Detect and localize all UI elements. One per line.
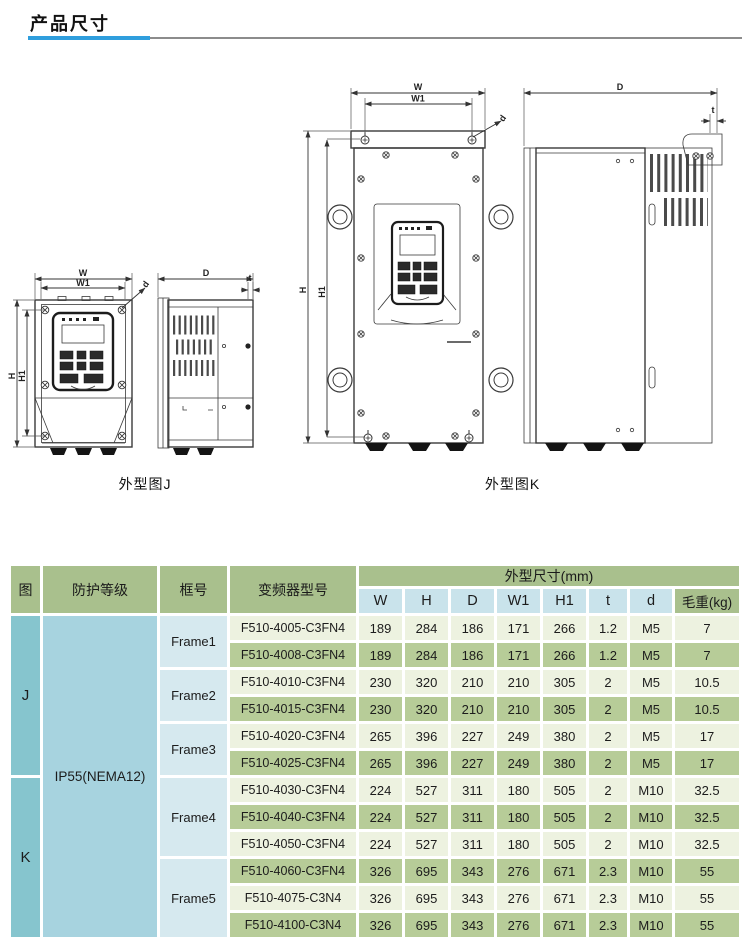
cell-dia: M10 [630,778,672,802]
cell-w1: 210 [497,697,540,721]
col-header-h: H [405,589,448,613]
cell-dia: M10 [630,805,672,829]
col-header-protection: 防护等级 [43,566,157,613]
cell-dia: M5 [630,643,672,667]
cell-weight: 55 [675,859,739,883]
cell-t: 2 [589,778,627,802]
dimension-spec-table: 图 防护等级 框号 变频器型号 外型尺寸(mm) W H D W1 H1 t d… [8,563,742,940]
dim-label-d-hole-k: d [497,113,508,123]
col-header-fig: 图 [11,566,40,613]
figure-j-side-view [158,298,253,455]
cell-w1: 249 [497,724,540,748]
cell-t: 1.2 [589,616,627,640]
model-cell: F510-4030-C3FN4 [230,778,356,802]
model-cell: F510-4008-C3FN4 [230,643,356,667]
fig-group-j: J [11,616,40,775]
cell-weight: 10.5 [675,670,739,694]
col-header-w1: W1 [497,589,540,613]
cell-d: 343 [451,913,494,937]
page-title: 产品尺寸 [30,10,110,36]
cell-w: 224 [359,778,402,802]
dim-label-t-k: t [712,105,715,115]
cell-h1: 671 [543,886,586,910]
cell-d: 227 [451,751,494,775]
cell-weight: 55 [675,886,739,910]
frame-cell: Frame2 [160,670,227,721]
col-header-model: 变频器型号 [230,566,356,613]
cell-weight: 7 [675,616,739,640]
cell-h: 320 [405,670,448,694]
dim-label-d-hole-j: d [140,279,151,289]
cell-h: 320 [405,697,448,721]
cell-d: 186 [451,643,494,667]
col-header-dims-group: 外型尺寸(mm) [359,566,739,586]
col-header-t: t [589,589,627,613]
dim-label-depth-j: D [203,268,210,278]
figure-k-keypad-panel [374,204,460,324]
cell-w: 265 [359,724,402,748]
cell-h1: 305 [543,670,586,694]
cell-d: 210 [451,670,494,694]
table-row: J IP55(NEMA12) Frame1 F510-4005-C3FN4 18… [11,616,739,640]
cell-h: 695 [405,886,448,910]
frame-cell: Frame5 [160,859,227,937]
cell-h1: 305 [543,697,586,721]
col-header-d: D [451,589,494,613]
model-cell: F510-4025-C3FN4 [230,751,356,775]
model-cell: F510-4010-C3FN4 [230,670,356,694]
dim-label-t-j: t [249,273,252,283]
cell-t: 2 [589,751,627,775]
cell-t: 2 [589,832,627,856]
cell-h: 527 [405,832,448,856]
figure-j-keypad [53,313,113,390]
dim-label-w1-j: W1 [76,278,90,288]
cell-w: 189 [359,643,402,667]
model-cell: F510-4060-C3FN4 [230,859,356,883]
cell-h: 527 [405,805,448,829]
figure-k-drawing: W W1 d H H1 D t [290,80,745,465]
frame-cell: Frame3 [160,724,227,775]
cell-h1: 380 [543,751,586,775]
fig-group-k: K [11,778,40,937]
cell-h1: 380 [543,724,586,748]
figure-k-side-view [524,134,722,451]
cell-h1: 505 [543,832,586,856]
cell-d: 343 [451,859,494,883]
cell-h: 284 [405,616,448,640]
model-cell: F510-4075-C3N4 [230,886,356,910]
cell-t: 2 [589,670,627,694]
title-underline-accent [28,36,150,40]
cell-d: 186 [451,616,494,640]
cell-w1: 276 [497,886,540,910]
figure-k-caption: 外型图K [455,474,570,494]
figure-j-caption: 外型图J [95,474,195,494]
cell-w: 230 [359,670,402,694]
cell-dia: M5 [630,724,672,748]
cell-dia: M5 [630,670,672,694]
cell-w: 326 [359,886,402,910]
cell-w: 224 [359,805,402,829]
dim-label-w-k: W [414,82,423,92]
col-header-h1: H1 [543,589,586,613]
title-underline-rule [150,37,742,39]
figure-j-drawing: W W1 d H H1 D t [10,268,275,473]
cell-dia: M10 [630,886,672,910]
cell-w1: 180 [497,778,540,802]
cell-dia: M5 [630,616,672,640]
cell-h1: 671 [543,913,586,937]
cell-dia: M10 [630,859,672,883]
col-header-dia: d [630,589,672,613]
cell-t: 2.3 [589,859,627,883]
cell-h1: 505 [543,805,586,829]
cell-weight: 32.5 [675,832,739,856]
cell-dia: M5 [630,697,672,721]
protection-cell: IP55(NEMA12) [43,616,157,937]
dim-label-h1-j: H1 [17,370,27,382]
cell-h: 695 [405,859,448,883]
cell-t: 2.3 [589,913,627,937]
cell-h: 396 [405,751,448,775]
cell-h1: 266 [543,643,586,667]
dim-label-depth-k: D [617,82,624,92]
cell-h1: 671 [543,859,586,883]
cell-dia: M10 [630,832,672,856]
cell-h: 396 [405,724,448,748]
model-cell: F510-4100-C3N4 [230,913,356,937]
cell-weight: 32.5 [675,778,739,802]
dim-label-h1-k: H1 [317,286,327,298]
cell-weight: 7 [675,643,739,667]
cell-d: 210 [451,697,494,721]
product-dimensions-page: 产品尺寸 [0,0,751,945]
dim-label-w-j: W [79,268,88,278]
figure-k-dimensions: W W1 d H H1 D t [298,82,726,443]
cell-weight: 55 [675,913,739,937]
cell-w1: 249 [497,751,540,775]
cell-d: 343 [451,886,494,910]
model-cell: F510-4040-C3FN4 [230,805,356,829]
cell-weight: 32.5 [675,805,739,829]
cell-weight: 10.5 [675,697,739,721]
dim-label-h-j: H [7,373,17,380]
cell-h1: 505 [543,778,586,802]
col-header-weight: 毛重(kg) [675,589,739,613]
figure-j-front-view [35,297,132,456]
cell-w1: 276 [497,859,540,883]
cell-t: 2.3 [589,886,627,910]
model-cell: F510-4020-C3FN4 [230,724,356,748]
cell-d: 311 [451,778,494,802]
cell-w1: 276 [497,913,540,937]
model-cell: F510-4015-C3FN4 [230,697,356,721]
col-header-w: W [359,589,402,613]
cell-weight: 17 [675,724,739,748]
cell-w1: 180 [497,832,540,856]
frame-cell: Frame4 [160,778,227,856]
cell-h: 527 [405,778,448,802]
cell-w1: 171 [497,643,540,667]
cell-t: 2 [589,805,627,829]
cell-t: 2 [589,697,627,721]
cell-d: 311 [451,805,494,829]
cell-w1: 171 [497,616,540,640]
figure-k-front-view [328,131,513,451]
cell-w: 265 [359,751,402,775]
cell-h1: 266 [543,616,586,640]
cell-d: 227 [451,724,494,748]
cell-d: 311 [451,832,494,856]
cell-w: 326 [359,859,402,883]
cell-t: 1.2 [589,643,627,667]
cell-dia: M10 [630,913,672,937]
cell-dia: M5 [630,751,672,775]
model-cell: F510-4005-C3FN4 [230,616,356,640]
cell-t: 2 [589,724,627,748]
cell-h: 695 [405,913,448,937]
table-header-row-1: 图 防护等级 框号 变频器型号 外型尺寸(mm) [11,566,739,586]
cell-h: 284 [405,643,448,667]
cell-w: 230 [359,697,402,721]
cell-weight: 17 [675,751,739,775]
figure-j-dimensions: W W1 d H H1 D t [7,268,260,447]
cell-w: 224 [359,832,402,856]
cell-w: 189 [359,616,402,640]
cell-w1: 210 [497,670,540,694]
dim-label-h-k: H [298,287,308,294]
cell-w: 326 [359,913,402,937]
col-header-frame: 框号 [160,566,227,613]
frame-cell: Frame1 [160,616,227,667]
model-cell: F510-4050-C3FN4 [230,832,356,856]
cell-w1: 180 [497,805,540,829]
dim-label-w1-k: W1 [411,94,425,104]
